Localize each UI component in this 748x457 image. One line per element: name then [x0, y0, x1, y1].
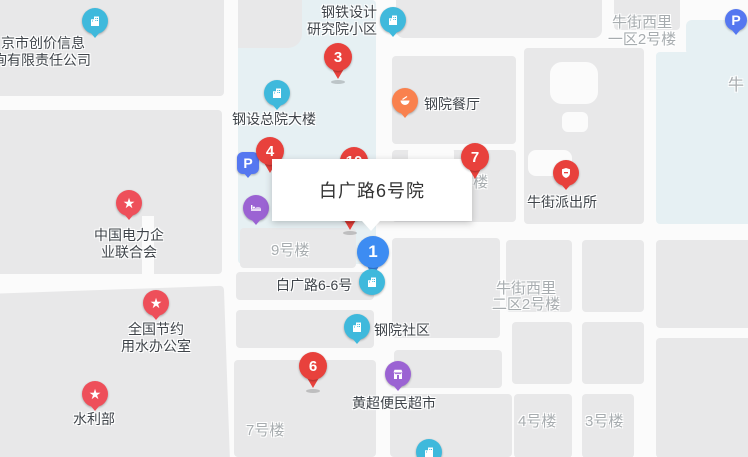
tooltip-title: 白广路6号院: [319, 177, 425, 203]
poi-marker-dianli[interactable]: ★: [116, 190, 142, 222]
poi-marker-hotel[interactable]: [243, 195, 269, 227]
building-label-niujie-1: 牛街西里 一区2号楼: [602, 14, 682, 48]
poi-label-baiguang66: 白广路6-6号: [276, 275, 352, 295]
poi-label-shequ: 钢院社区: [374, 320, 430, 340]
map-pin-1[interactable]: 1: [357, 236, 389, 268]
city-block: [656, 240, 748, 328]
poi-marker-chuangjia[interactable]: [82, 8, 108, 40]
building-label-niu: 牛: [728, 71, 744, 95]
city-block: [0, 286, 230, 457]
building-label-4: 4号楼: [518, 410, 556, 431]
bed-icon: [250, 202, 262, 214]
building-label-niujie-2: 牛街西里 二区2号楼: [483, 281, 569, 313]
building-label-7: 7号楼: [246, 419, 284, 440]
poi-marker-canting[interactable]: [392, 88, 418, 120]
map-canvas[interactable]: 9号楼 7号楼 4号楼 3号楼 牛 号楼 牛街西里 一区2号楼 牛街西里 二区2…: [0, 0, 748, 457]
building-icon: [387, 14, 399, 26]
star-icon: ★: [150, 296, 163, 310]
poi-marker-baiguang66[interactable]: [359, 269, 385, 301]
info-tooltip[interactable]: 白广路6号院: [272, 159, 472, 221]
parking-icon: P: [243, 155, 252, 171]
building-icon: [89, 15, 101, 27]
map-pin-6[interactable]: 6: [299, 352, 327, 380]
poi-label-gangshe: 钢设总院大楼: [232, 109, 316, 129]
poi-marker-shuilibu[interactable]: ★: [82, 381, 108, 413]
poi-marker-gangshe[interactable]: [264, 80, 290, 112]
poi-label-chuangjia: 京市创价信息 询有限责任公司: [0, 35, 91, 69]
building-label-3: 3号楼: [585, 410, 623, 431]
poi-marker-chaoshi[interactable]: [385, 361, 411, 393]
building-icon: [351, 321, 363, 333]
poi-label-dianli: 中国电力企 业联合会: [89, 227, 169, 261]
star-icon: ★: [89, 387, 102, 401]
parking-icon: P: [731, 12, 740, 28]
map-pin-3[interactable]: 3: [324, 43, 352, 71]
poi-label-jieyue: 全国节约 用水办公室: [116, 321, 196, 355]
courtyard: [550, 62, 598, 104]
poi-marker-bottom-edge[interactable]: [416, 439, 442, 457]
city-block: [396, 0, 602, 38]
courtyard: [562, 112, 588, 132]
city-block: [656, 338, 748, 457]
building-icon: [366, 276, 378, 288]
poi-marker-gangtie[interactable]: [380, 7, 406, 39]
map-pin-7[interactable]: 7: [461, 143, 489, 171]
city-block: [512, 322, 572, 384]
poi-label-chaoshi: 黄超便民超市: [352, 393, 436, 413]
city-block: [582, 322, 644, 384]
poi-marker-jieyue[interactable]: ★: [143, 290, 169, 322]
star-icon: ★: [123, 196, 136, 210]
building-icon: [423, 446, 435, 457]
poi-label-canting: 钢院餐厅: [424, 94, 480, 114]
tooltip-arrow: [362, 221, 380, 231]
restaurant-icon: [399, 95, 411, 107]
building-icon: [271, 87, 283, 99]
poi-label-paichusuo: 牛街派出所: [527, 192, 597, 212]
building-label-9: 9号楼: [271, 239, 309, 260]
city-block: [582, 240, 644, 312]
police-badge-icon: [560, 167, 572, 179]
city-block: [238, 0, 302, 48]
poi-label-gangtie: 钢铁设计 研究院小区: [295, 4, 377, 38]
store-icon: [392, 368, 404, 380]
poi-marker-paichusuo[interactable]: [553, 160, 579, 192]
parking-marker-2[interactable]: P: [723, 7, 748, 39]
poi-marker-shequ[interactable]: [344, 314, 370, 346]
